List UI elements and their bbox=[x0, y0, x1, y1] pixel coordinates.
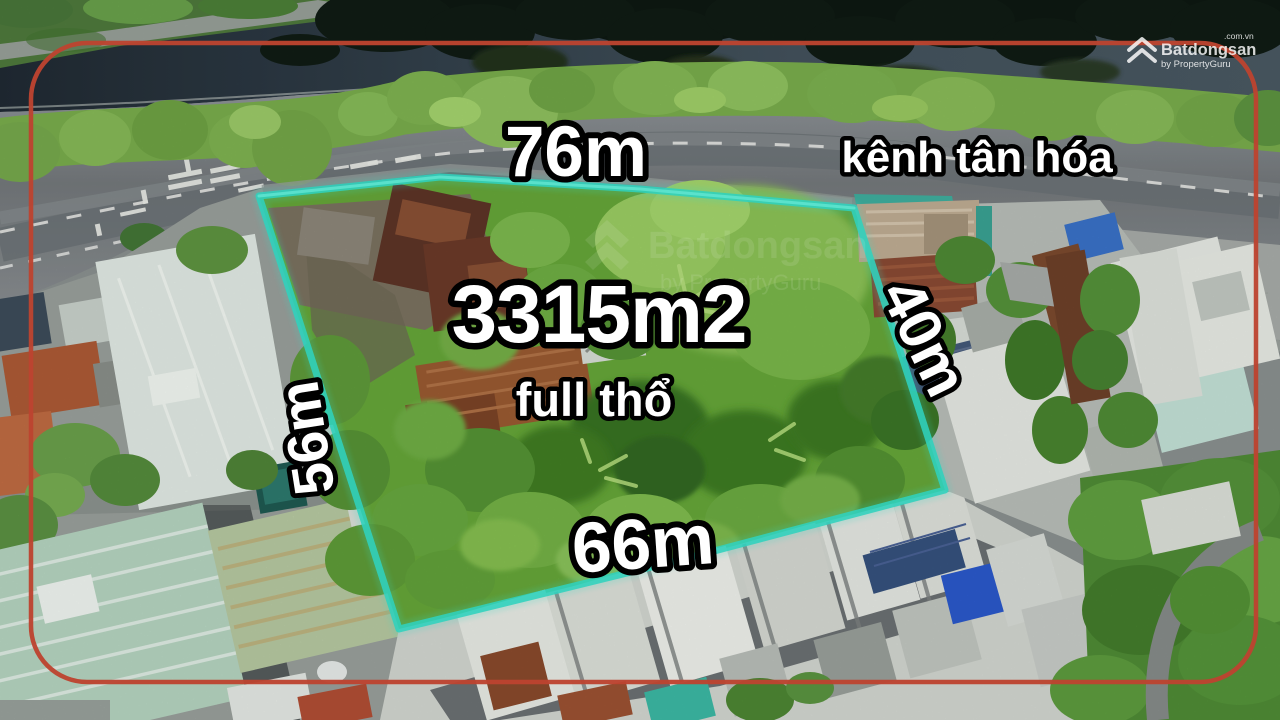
svg-text:66m: 66m bbox=[569, 500, 716, 589]
svg-text:76m: 76m bbox=[505, 113, 647, 192]
svg-text:by PropertyGuru: by PropertyGuru bbox=[1161, 59, 1231, 70]
svg-text:3315m2: 3315m2 bbox=[452, 269, 747, 360]
svg-text:Batdongsan: Batdongsan bbox=[1161, 41, 1256, 59]
svg-text:.com.vn: .com.vn bbox=[1224, 31, 1254, 41]
svg-text:full thổ: full thổ bbox=[516, 373, 673, 426]
svg-text:kênh tân hóa: kênh tân hóa bbox=[841, 133, 1113, 182]
svg-text:Batdongsan: Batdongsan bbox=[648, 225, 868, 267]
